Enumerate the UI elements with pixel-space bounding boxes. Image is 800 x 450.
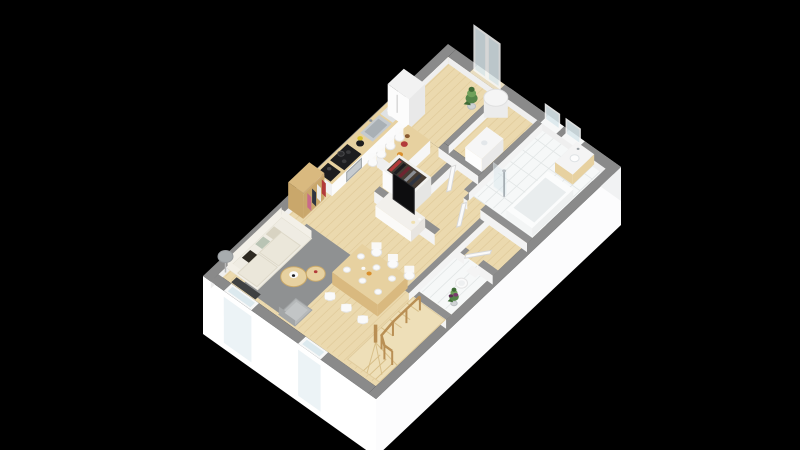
- serving-bowl: [367, 272, 372, 276]
- floorplan-stage: [0, 0, 800, 450]
- plant-stairs-leaf: [452, 288, 457, 292]
- candle: [411, 221, 415, 224]
- water-heater-top: [484, 89, 508, 106]
- dining-chair-back: [372, 242, 382, 249]
- dining-chair-back: [325, 292, 335, 299]
- blender: [356, 140, 364, 146]
- candle: [418, 218, 421, 220]
- dining-chair-back: [404, 266, 414, 273]
- blender-jar: [357, 136, 363, 140]
- dining-chair-back: [341, 304, 351, 311]
- burner: [346, 150, 351, 154]
- bar-stool-back: [377, 146, 385, 153]
- plate: [373, 265, 380, 270]
- coffee-machine-top: [327, 167, 331, 170]
- jug: [361, 267, 365, 270]
- plant-patio-leaf: [469, 87, 475, 92]
- dining-chair-back: [388, 254, 398, 261]
- dining-chair: [371, 248, 381, 256]
- shoes: [449, 294, 453, 297]
- plate: [389, 276, 396, 281]
- dining-chair-back: [358, 316, 368, 323]
- shower-head: [502, 169, 506, 172]
- floor-lamp-shade: [218, 251, 233, 263]
- washer-lid: [481, 140, 487, 145]
- faucet: [369, 119, 372, 122]
- plate: [343, 267, 350, 272]
- food-bread: [405, 134, 410, 138]
- bar-stool-back: [369, 154, 377, 161]
- dining-chair: [404, 272, 414, 280]
- bar-stool-back: [386, 137, 394, 144]
- coffee-table-small: [306, 266, 325, 281]
- basin: [570, 155, 579, 162]
- decor: [314, 270, 318, 273]
- food-bowl: [401, 141, 408, 147]
- plate: [359, 278, 366, 283]
- plate: [375, 289, 382, 294]
- shoes: [453, 293, 458, 297]
- tap: [577, 148, 580, 150]
- plate: [357, 254, 364, 259]
- tray-item: [292, 274, 295, 277]
- bar-stool-back: [395, 128, 403, 135]
- dining-chair: [388, 260, 398, 268]
- patio-door-glass: [474, 26, 486, 78]
- pot: [338, 151, 344, 156]
- patio-door-glass: [488, 36, 500, 88]
- toilet-seat: [458, 280, 465, 286]
- burner: [342, 159, 347, 163]
- floorplan-3d-render: [0, 0, 800, 450]
